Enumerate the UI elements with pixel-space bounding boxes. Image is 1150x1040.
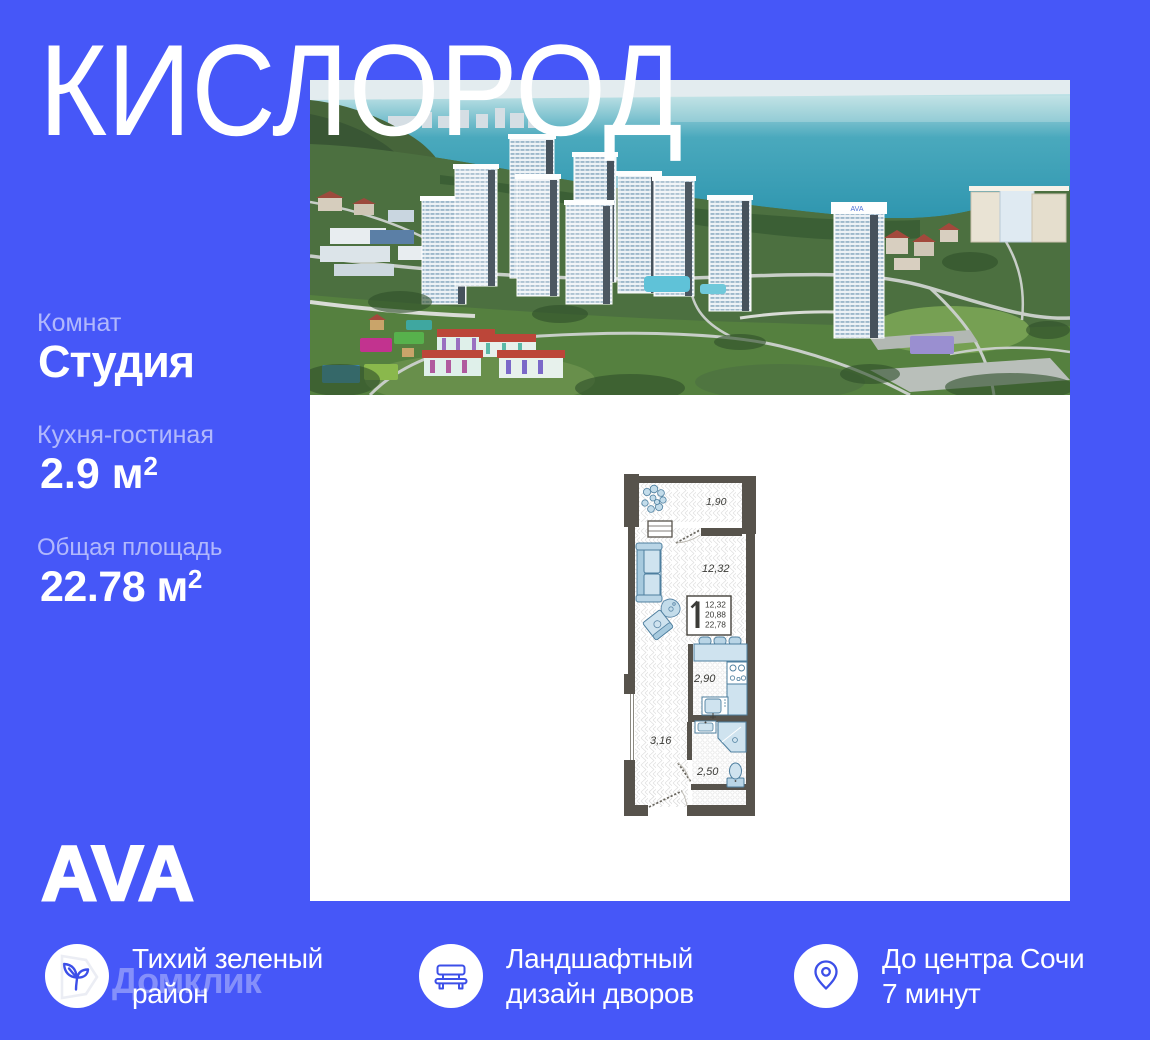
svg-text:AVA: AVA xyxy=(851,206,864,213)
svg-text:3,16: 3,16 xyxy=(650,735,672,747)
svg-text:2,90: 2,90 xyxy=(693,673,716,685)
svg-text:20,88: 20,88 xyxy=(705,610,726,620)
svg-text:12,32: 12,32 xyxy=(705,600,726,610)
svg-text:22,78: 22,78 xyxy=(705,620,726,630)
svg-text:1,90: 1,90 xyxy=(706,496,727,508)
svg-text:2,50: 2,50 xyxy=(696,766,719,778)
svg-text:12,32: 12,32 xyxy=(702,563,730,575)
